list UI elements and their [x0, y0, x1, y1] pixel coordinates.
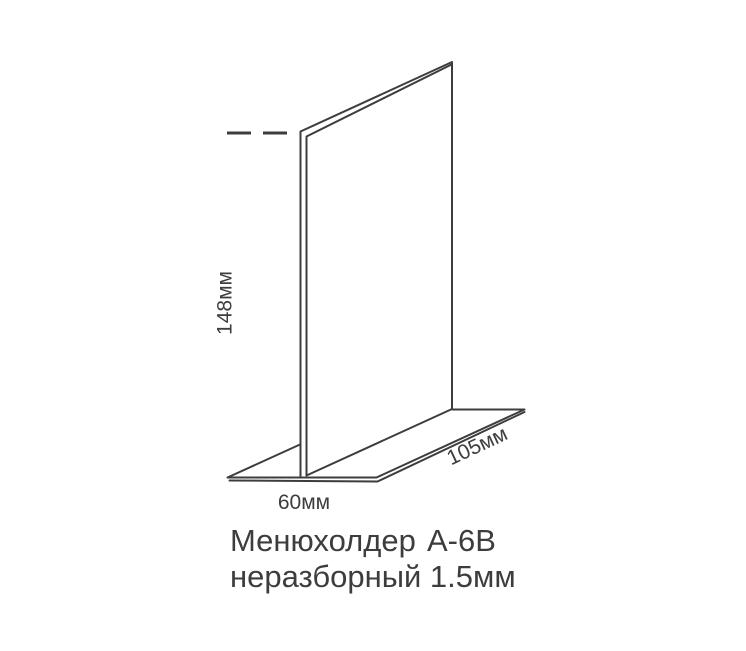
base-depth-dimension-label: 60мм [278, 491, 330, 514]
panel-outer-contour [301, 62, 453, 477]
caption-product-name: Менюхолдер [230, 523, 416, 558]
panel-thickness-line [307, 65, 452, 476]
caption-model-code: А-6В [427, 523, 496, 558]
height-dimension-label: 148мм [214, 271, 237, 335]
diagram-canvas: 148мм 60мм 105мм Менюхолдер А-6В неразбо… [0, 0, 746, 651]
base-length-dimension-label: 105мм [443, 422, 511, 470]
caption-subtitle: неразборный 1.5мм [230, 559, 516, 594]
menu-holder-diagram: 148мм 60мм 105мм Менюхолдер А-6В неразбо… [0, 0, 746, 651]
panel-base-junction-line [307, 409, 453, 476]
